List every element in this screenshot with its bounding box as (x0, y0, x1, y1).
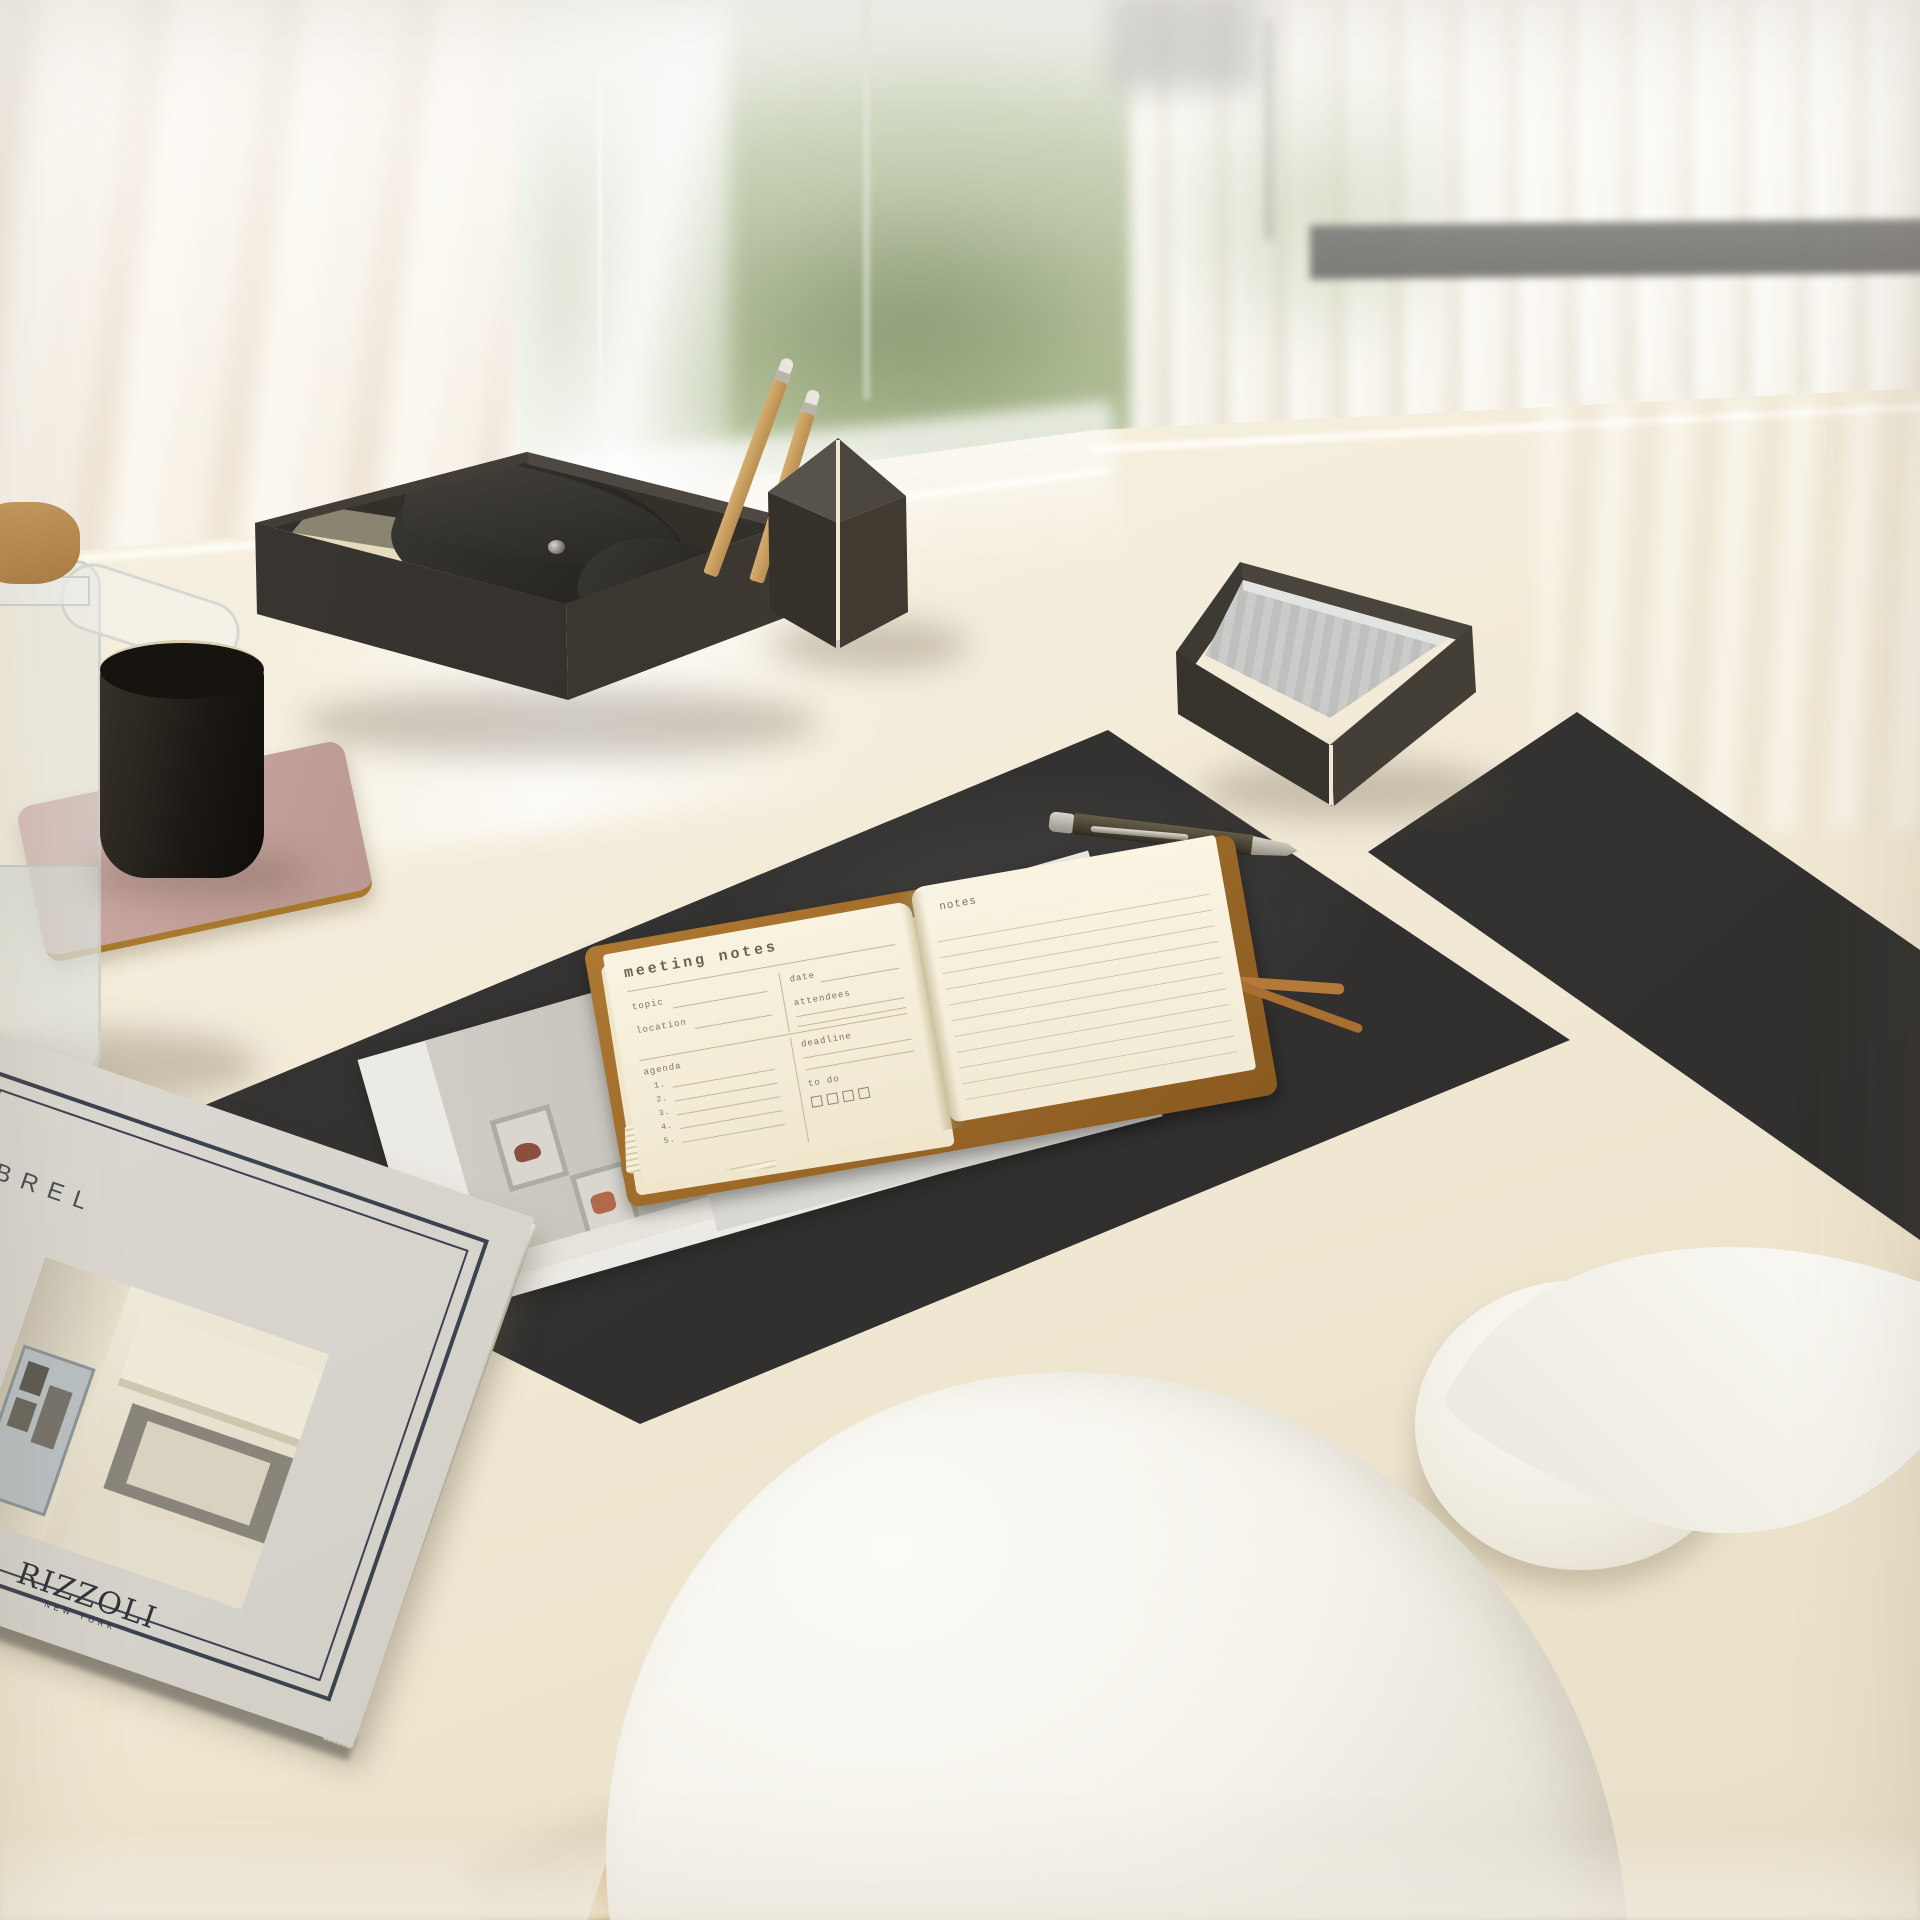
desk-scene-photo: me meeting notes topic location date att… (0, 0, 1920, 1920)
vignette (0, 0, 1920, 1920)
